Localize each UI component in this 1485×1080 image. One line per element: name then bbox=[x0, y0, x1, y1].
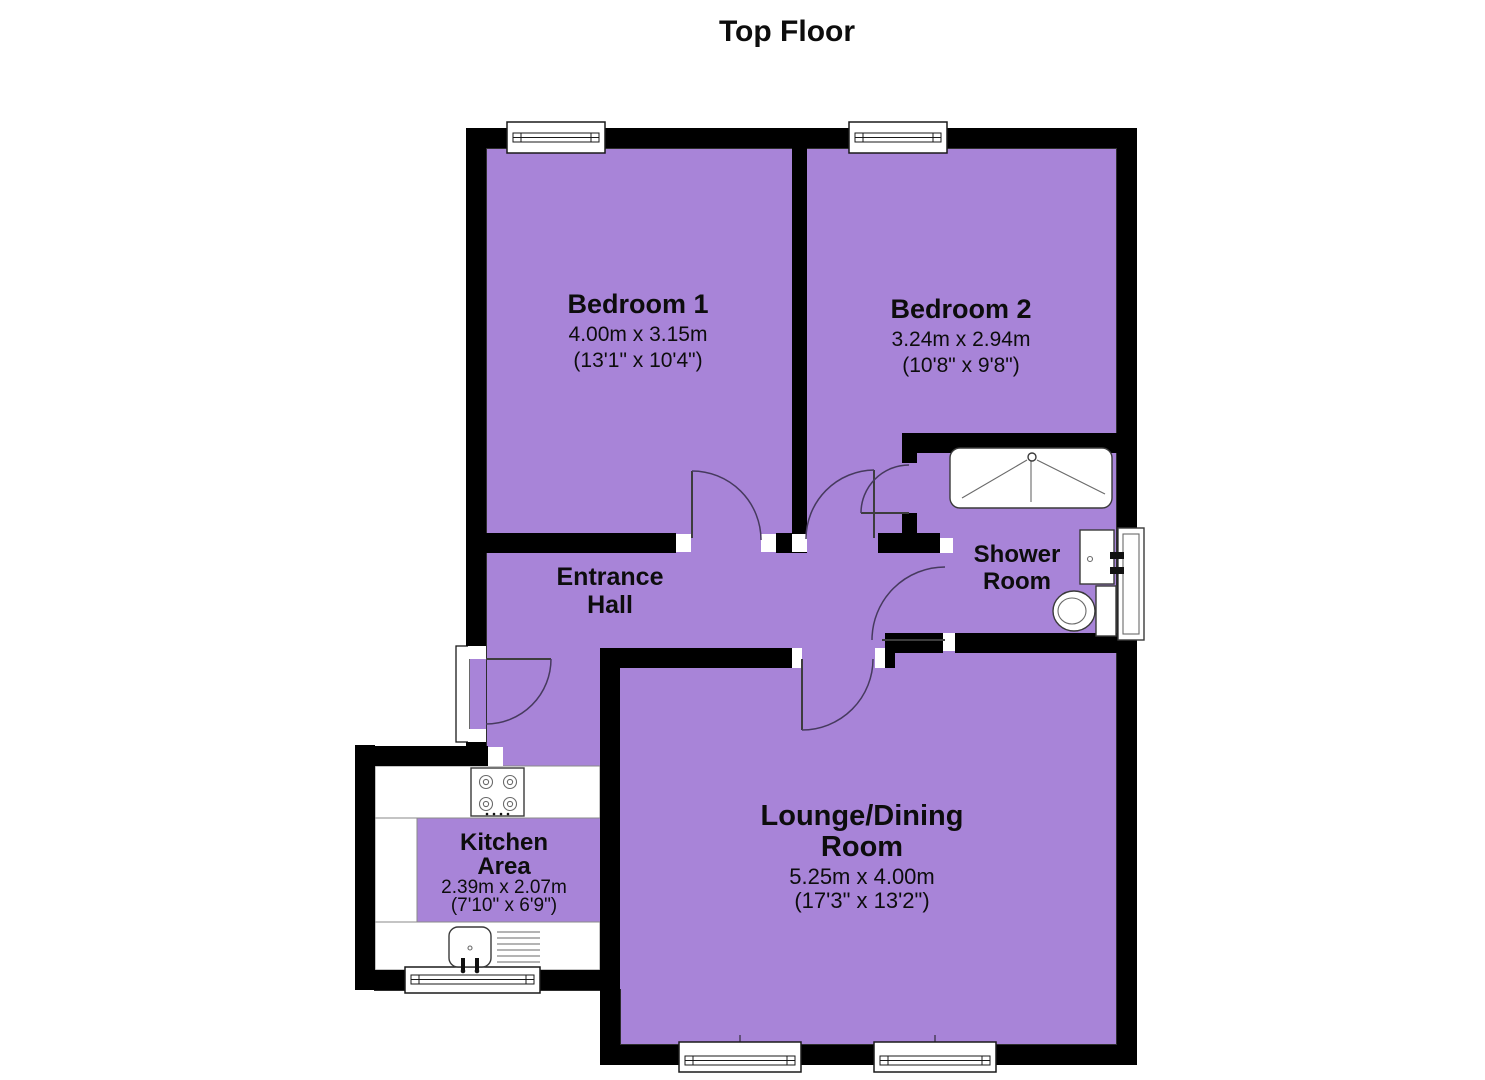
floorplan-page: Top Floor bbox=[0, 0, 1485, 1080]
room-dim-metric: 3.24m x 2.94m bbox=[892, 328, 1031, 351]
room-dim-imperial: (17'3" x 13'2") bbox=[794, 888, 929, 913]
room-name: Bedroom 1 bbox=[567, 289, 708, 319]
wall-lounge-left bbox=[600, 648, 620, 1065]
jamb bbox=[943, 633, 955, 651]
page-title: Top Floor bbox=[719, 15, 855, 48]
room-name: Room bbox=[983, 568, 1051, 595]
wall-hall-lounge bbox=[620, 648, 792, 668]
jamb bbox=[761, 534, 776, 552]
jamb bbox=[468, 646, 486, 659]
room-name: Lounge/Dining bbox=[761, 800, 964, 832]
jamb bbox=[792, 534, 807, 552]
hob bbox=[471, 768, 524, 816]
room-name: Kitchen bbox=[460, 829, 548, 856]
room-dim-imperial: (13'1" x 10'4") bbox=[573, 349, 702, 372]
room-name: Shower bbox=[974, 541, 1061, 568]
room-dim-metric: 5.25m x 4.00m bbox=[789, 864, 935, 889]
wall-vestibule-stub-lower bbox=[902, 513, 917, 538]
entrance-door-frame bbox=[456, 646, 470, 742]
radiator bbox=[1118, 528, 1144, 640]
floorplan-svg: Top Floor bbox=[0, 0, 1485, 1080]
wall-outer-left-upper bbox=[466, 128, 486, 646]
jamb bbox=[468, 729, 486, 742]
wall-shower-bottom-left bbox=[890, 633, 943, 653]
wall-vestibule-stub-upper bbox=[902, 453, 917, 463]
window-icon bbox=[849, 122, 947, 153]
wall-kitchen-left bbox=[355, 745, 375, 990]
toilet bbox=[1053, 586, 1116, 636]
room-dim-imperial: (10'8" x 9'8") bbox=[902, 354, 1019, 377]
jamb bbox=[676, 534, 691, 552]
label-shower-room: Shower Room bbox=[974, 541, 1061, 595]
jamb bbox=[488, 747, 503, 766]
wall-shower-bottom-right bbox=[955, 633, 1117, 653]
jamb bbox=[875, 648, 885, 668]
label-bedroom-2: Bedroom 2 3.24m x 2.94m (10'8" x 9'8") bbox=[890, 294, 1031, 377]
label-bedroom-1: Bedroom 1 4.00m x 3.15m (13'1" x 10'4") bbox=[567, 289, 708, 372]
room-name: Hall bbox=[587, 591, 633, 619]
window-icon bbox=[405, 967, 540, 993]
room-name: Entrance bbox=[557, 563, 664, 591]
wall-bedroom-divider bbox=[792, 148, 807, 533]
entrance-opening bbox=[470, 658, 486, 730]
shower-tray bbox=[950, 448, 1112, 508]
room-name: Area bbox=[477, 853, 531, 880]
wall-bedroom1-bottom bbox=[486, 533, 676, 553]
room-name: Bedroom 2 bbox=[890, 294, 1031, 324]
room-name: Room bbox=[821, 831, 903, 863]
room-dim-imperial: (7'10" x 6'9") bbox=[451, 895, 557, 916]
jamb bbox=[940, 538, 953, 553]
window-icon bbox=[507, 122, 605, 153]
room-dim-metric: 4.00m x 3.15m bbox=[569, 323, 708, 346]
wall-outer-left-lower bbox=[466, 742, 486, 766]
jamb bbox=[792, 648, 802, 668]
